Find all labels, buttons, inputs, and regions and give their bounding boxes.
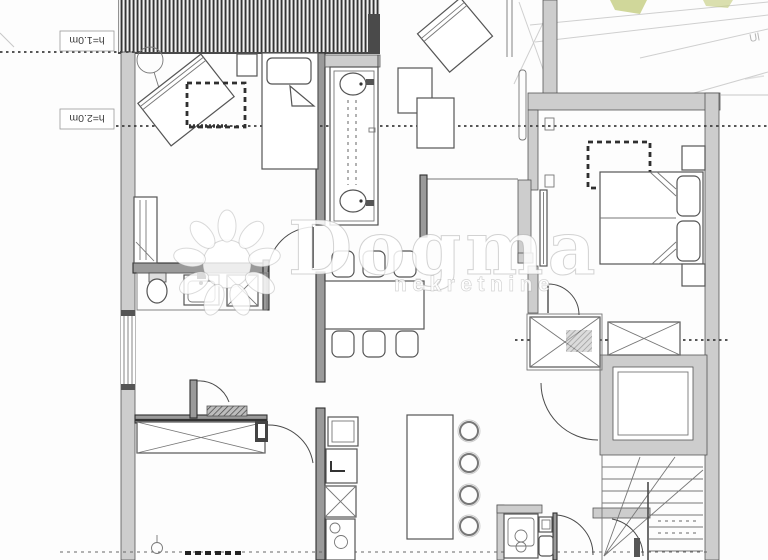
door-arc xyxy=(268,425,313,463)
coffee-table xyxy=(417,98,454,148)
angled-bed xyxy=(138,54,234,146)
floor-plan-image: Ul xyxy=(0,0,768,560)
kitchen-island-area xyxy=(325,415,480,560)
single-bed xyxy=(262,53,318,169)
floor-lamp-icon xyxy=(152,535,163,554)
doormat-icon xyxy=(207,406,247,416)
door-arc xyxy=(541,383,598,440)
x-wardrobe xyxy=(527,314,602,370)
x-wardrobe xyxy=(135,420,267,453)
green-area xyxy=(703,0,733,8)
small-sink-icon xyxy=(539,517,552,532)
attic-height-label-high: h=2.0m xyxy=(69,112,105,124)
pillow xyxy=(677,176,700,216)
chimney xyxy=(368,14,380,53)
chair xyxy=(363,331,385,357)
fridge-icon xyxy=(328,417,358,446)
side-table xyxy=(237,54,257,76)
street-label: Ul xyxy=(748,31,760,45)
green-area xyxy=(610,0,647,14)
utility-bathroom xyxy=(504,514,643,558)
attic-height-tag: h=2.0m xyxy=(60,109,114,129)
watermark-tagline: nekretnine xyxy=(394,273,555,296)
radiator-icon xyxy=(519,70,526,140)
chair xyxy=(332,331,354,357)
attic-height-tag: h=1.0m xyxy=(60,31,114,51)
stove-icon xyxy=(325,486,356,517)
nightstand xyxy=(682,146,705,170)
pillow xyxy=(677,221,700,261)
chair xyxy=(396,331,418,357)
height-labels: h=1.0m h=2.0m xyxy=(60,31,114,129)
bathroom-vanity xyxy=(325,55,380,225)
x-wardrobe xyxy=(608,322,680,355)
double-sink-icon xyxy=(326,519,355,560)
bedroom-topleft xyxy=(137,47,318,169)
washing-machine-icon xyxy=(504,514,538,558)
door-arc xyxy=(557,515,593,555)
door-arc xyxy=(197,381,229,402)
roof-hatch xyxy=(118,0,380,53)
toilet-icon xyxy=(147,273,167,303)
nightstand xyxy=(682,264,705,286)
shaft-void xyxy=(613,367,693,440)
double-bed xyxy=(600,172,703,264)
lounge-chair xyxy=(417,0,492,72)
wardrobe xyxy=(134,197,157,263)
bar-stools xyxy=(458,420,480,537)
attic-height-label-low: h=1.0m xyxy=(69,34,105,46)
entry-area xyxy=(135,381,313,554)
winder-staircase xyxy=(602,455,703,560)
window-left xyxy=(121,310,135,390)
kitchen-island xyxy=(407,415,453,539)
toilet-icon xyxy=(539,536,553,556)
